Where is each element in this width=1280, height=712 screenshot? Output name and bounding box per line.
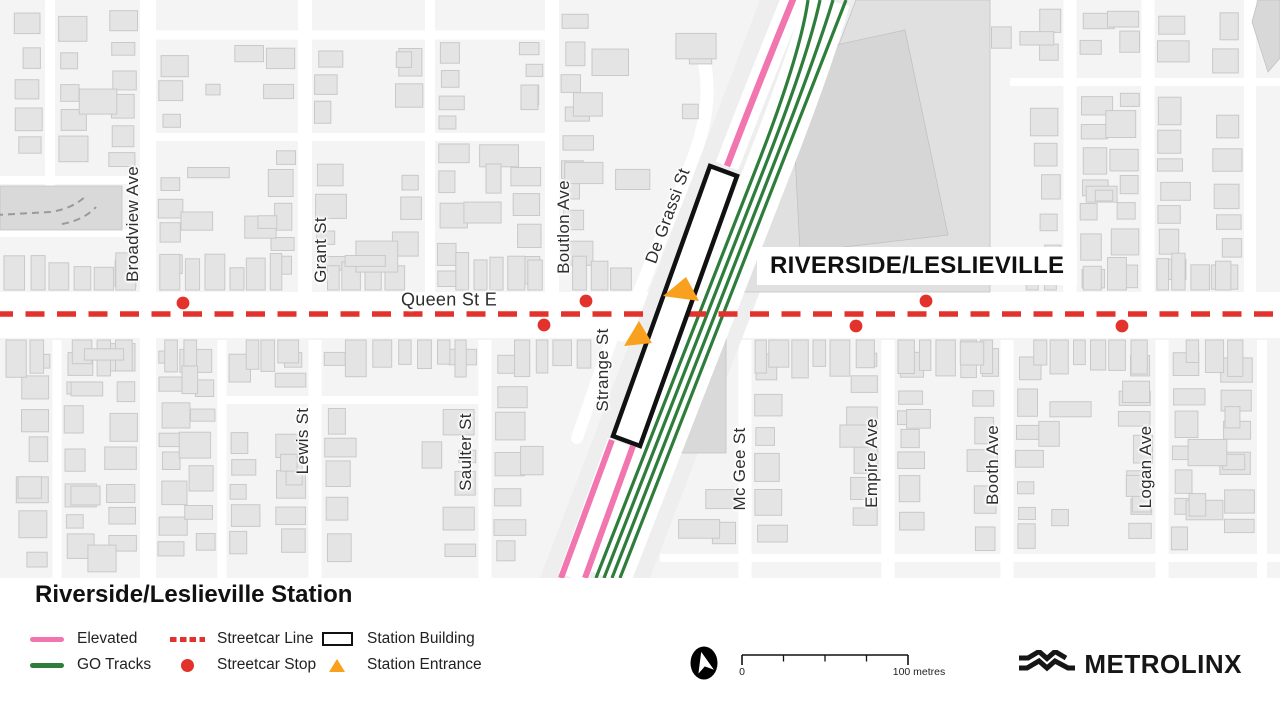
legend-item-go-tracks: GO Tracks xyxy=(28,656,151,674)
legend-item-elevated: Elevated xyxy=(28,630,137,648)
street-label-lewis: Lewis St xyxy=(293,408,313,475)
street-label-booth: Booth Ave xyxy=(983,425,1003,505)
north-arrow xyxy=(687,645,721,683)
street-label-broadview: Broadview Ave xyxy=(123,166,143,282)
legend-label: GO Tracks xyxy=(77,656,151,674)
elevated-line-swatch xyxy=(30,637,64,642)
station-entrance-swatch xyxy=(329,659,345,672)
scale-end-label: 100 metres xyxy=(893,666,946,678)
street-label-empire: Empire Ave xyxy=(862,418,882,508)
scale-bar: 0 100 metres xyxy=(736,646,951,678)
metrolinx-logo-text: METROLINX xyxy=(1084,649,1242,680)
street-label-strange: Strange St xyxy=(593,328,613,411)
streetcar-stop-dot xyxy=(580,295,593,308)
metrolinx-logo: METROLINX xyxy=(1019,649,1242,680)
legend-label: Elevated xyxy=(77,630,137,648)
streetcar-stop-dot xyxy=(850,320,863,333)
streetcar-stop-swatch xyxy=(181,659,194,672)
legend-label: Streetcar Stop xyxy=(217,656,316,674)
street-label-queen: Queen St E xyxy=(401,290,497,311)
station-map-page: Broadview Ave Grant St Boutlon Ave De Gr… xyxy=(0,0,1280,712)
streetcar-stop-dot xyxy=(177,297,190,310)
legend-item-station-building: Station Building xyxy=(318,630,475,648)
legend-item-streetcar-line: Streetcar Line xyxy=(168,630,314,648)
street-label-boutlon: Boutlon Ave xyxy=(554,180,574,274)
legend-label: Streetcar Line xyxy=(217,630,314,648)
legend-item-station-entrance: Station Entrance xyxy=(318,656,482,674)
streetcar-stop-dot xyxy=(1116,320,1129,333)
station-building-swatch xyxy=(322,632,353,646)
scale-start-label: 0 xyxy=(739,666,745,678)
legend-label: Station Entrance xyxy=(367,656,482,674)
street-label-saulter: Saulter St xyxy=(456,413,476,491)
map-svg xyxy=(0,0,1280,578)
metrolinx-logo-icon xyxy=(1019,650,1075,680)
streetcar-stop-dot xyxy=(920,295,933,308)
streetcar-line-swatch xyxy=(170,637,205,642)
legend-title: Riverside/Leslieville Station xyxy=(35,581,352,609)
station-area-label: RIVERSIDE/LESLIEVILLE xyxy=(757,247,1077,285)
streetcar-stop-dot xyxy=(538,319,551,332)
street-label-mcgee: Mc Gee St xyxy=(730,427,750,510)
legend-item-streetcar-stop: Streetcar Stop xyxy=(168,656,316,674)
street-label-grant: Grant St xyxy=(311,217,331,283)
legend-label: Station Building xyxy=(367,630,475,648)
map: Broadview Ave Grant St Boutlon Ave De Gr… xyxy=(0,0,1280,578)
street-label-logan: Logan Ave xyxy=(1136,426,1156,509)
go-tracks-line-swatch xyxy=(30,663,64,668)
